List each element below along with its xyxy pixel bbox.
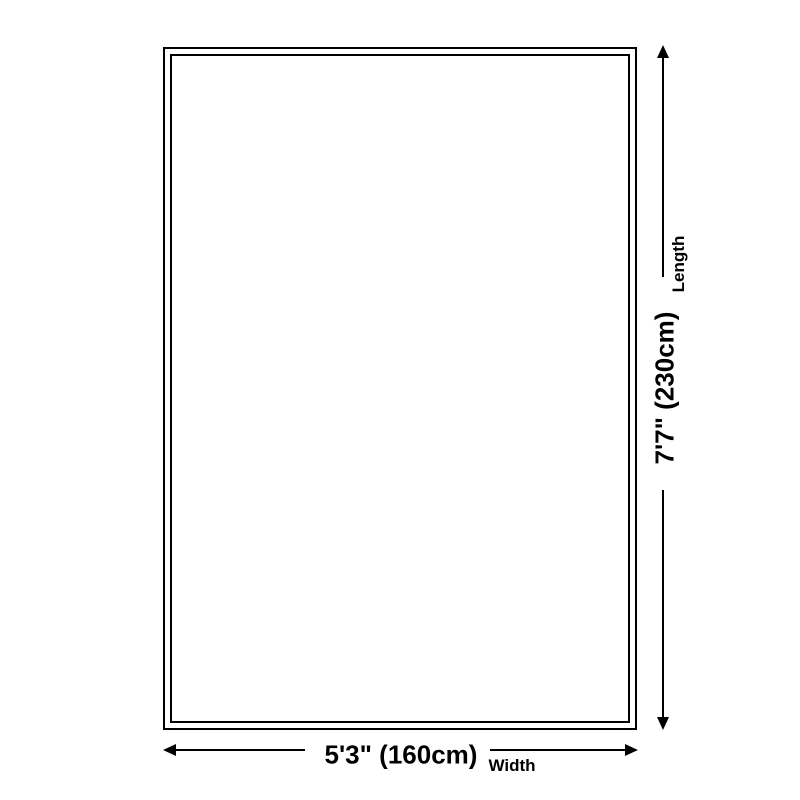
arrow-left-icon [163,744,176,756]
length-dimension-line-lower [662,490,664,718]
rug-outline [163,47,637,730]
width-dimension-line-right [490,749,626,751]
length-dimension-line-upper [662,56,664,277]
rug-inner-outline [170,54,630,723]
width-axis-label: Width [488,756,535,776]
width-dimension-line-left [176,749,305,751]
arrow-down-icon [657,717,669,730]
arrow-right-icon [625,744,638,756]
width-value-label: 5'3" (160cm) [325,740,478,771]
length-axis-label: Length [669,236,689,293]
rug-dimension-diagram: Length 7'7" (230cm) 5'3" (160cm) Width [0,0,800,800]
length-value-label: 7'7" (230cm) [650,312,681,465]
